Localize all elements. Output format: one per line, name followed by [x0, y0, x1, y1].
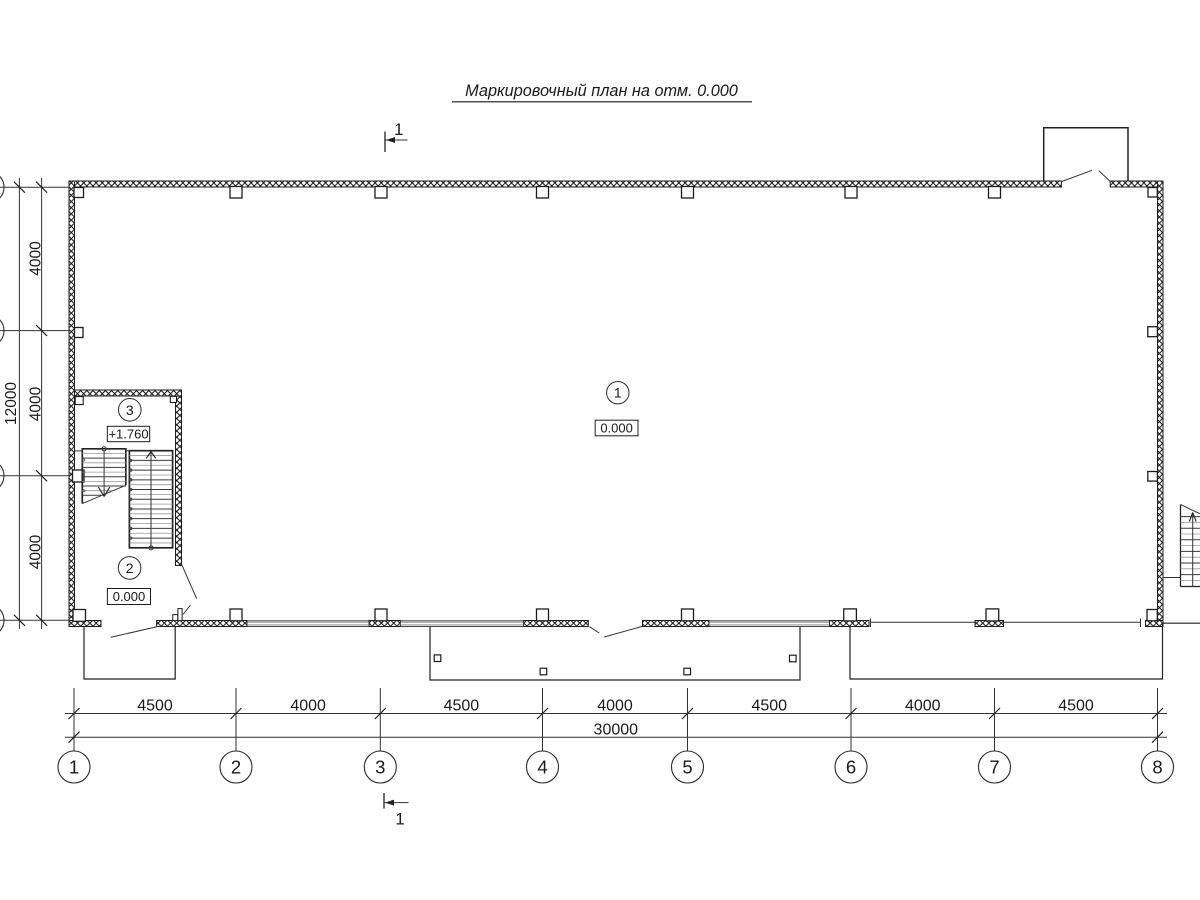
svg-text:4500: 4500: [444, 697, 480, 714]
svg-text:4000: 4000: [905, 697, 941, 714]
svg-text:5: 5: [682, 756, 692, 777]
svg-text:6: 6: [846, 756, 856, 777]
svg-text:4500: 4500: [137, 697, 173, 714]
svg-text:12000: 12000: [3, 382, 20, 425]
svg-text:1: 1: [394, 120, 403, 139]
svg-text:4000: 4000: [597, 697, 633, 714]
svg-text:2: 2: [231, 756, 241, 777]
svg-text:4500: 4500: [751, 697, 787, 714]
svg-text:0.000: 0.000: [113, 589, 146, 604]
svg-text:4: 4: [537, 756, 547, 777]
svg-text:+1.760: +1.760: [108, 427, 148, 442]
svg-text:4500: 4500: [1058, 697, 1094, 714]
svg-text:1: 1: [614, 385, 622, 401]
svg-text:1: 1: [395, 810, 404, 829]
svg-text:2: 2: [126, 560, 134, 576]
svg-text:4000: 4000: [27, 241, 44, 276]
svg-text:3: 3: [375, 756, 385, 777]
svg-text:3: 3: [126, 402, 134, 418]
svg-text:8: 8: [1152, 756, 1162, 777]
svg-text:1: 1: [69, 756, 79, 777]
svg-text:4000: 4000: [290, 697, 326, 714]
svg-text:4000: 4000: [27, 534, 44, 569]
svg-text:0.000: 0.000: [600, 421, 633, 436]
svg-text:Маркировочный план на отм. 0.0: Маркировочный план на отм. 0.000: [465, 82, 738, 100]
svg-text:4000: 4000: [27, 386, 44, 421]
svg-text:30000: 30000: [594, 721, 639, 738]
svg-text:7: 7: [989, 756, 999, 777]
